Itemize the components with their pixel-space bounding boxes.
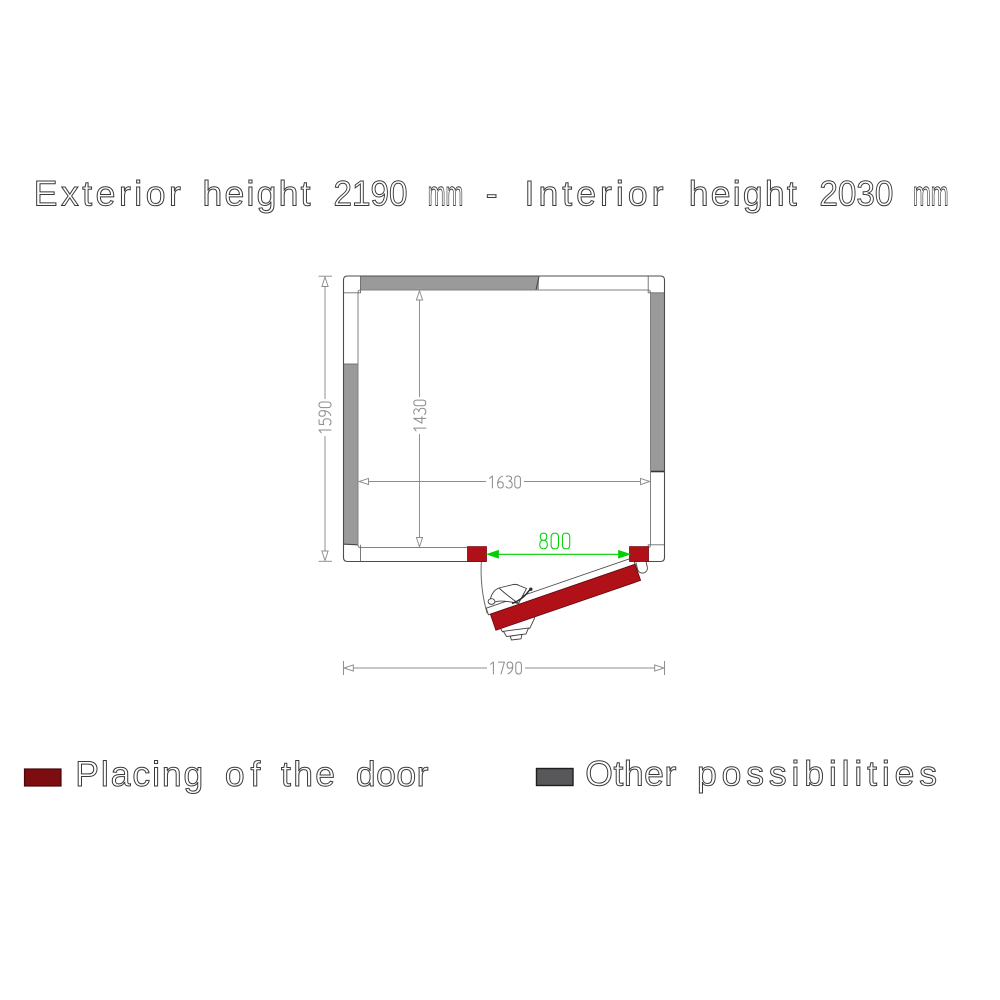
svg-text:Interior: Interior	[525, 174, 664, 214]
svg-text:mm: mm	[428, 174, 464, 214]
svg-text:mm: mm	[913, 174, 949, 214]
svg-text:door: door	[356, 754, 429, 794]
svg-text:-: -	[486, 174, 498, 214]
svg-text:2030: 2030	[819, 174, 893, 214]
svg-text:2190: 2190	[334, 174, 408, 214]
svg-text:possibilities: possibilities	[697, 754, 937, 794]
svg-text:of: of	[225, 754, 261, 794]
svg-text:height: height	[203, 174, 311, 214]
svg-text:Placing: Placing	[75, 754, 203, 794]
svg-text:the: the	[281, 754, 335, 794]
svg-text:Exterior: Exterior	[34, 174, 181, 214]
svg-text:height: height	[689, 174, 797, 214]
svg-text:Other: Other	[585, 754, 676, 794]
